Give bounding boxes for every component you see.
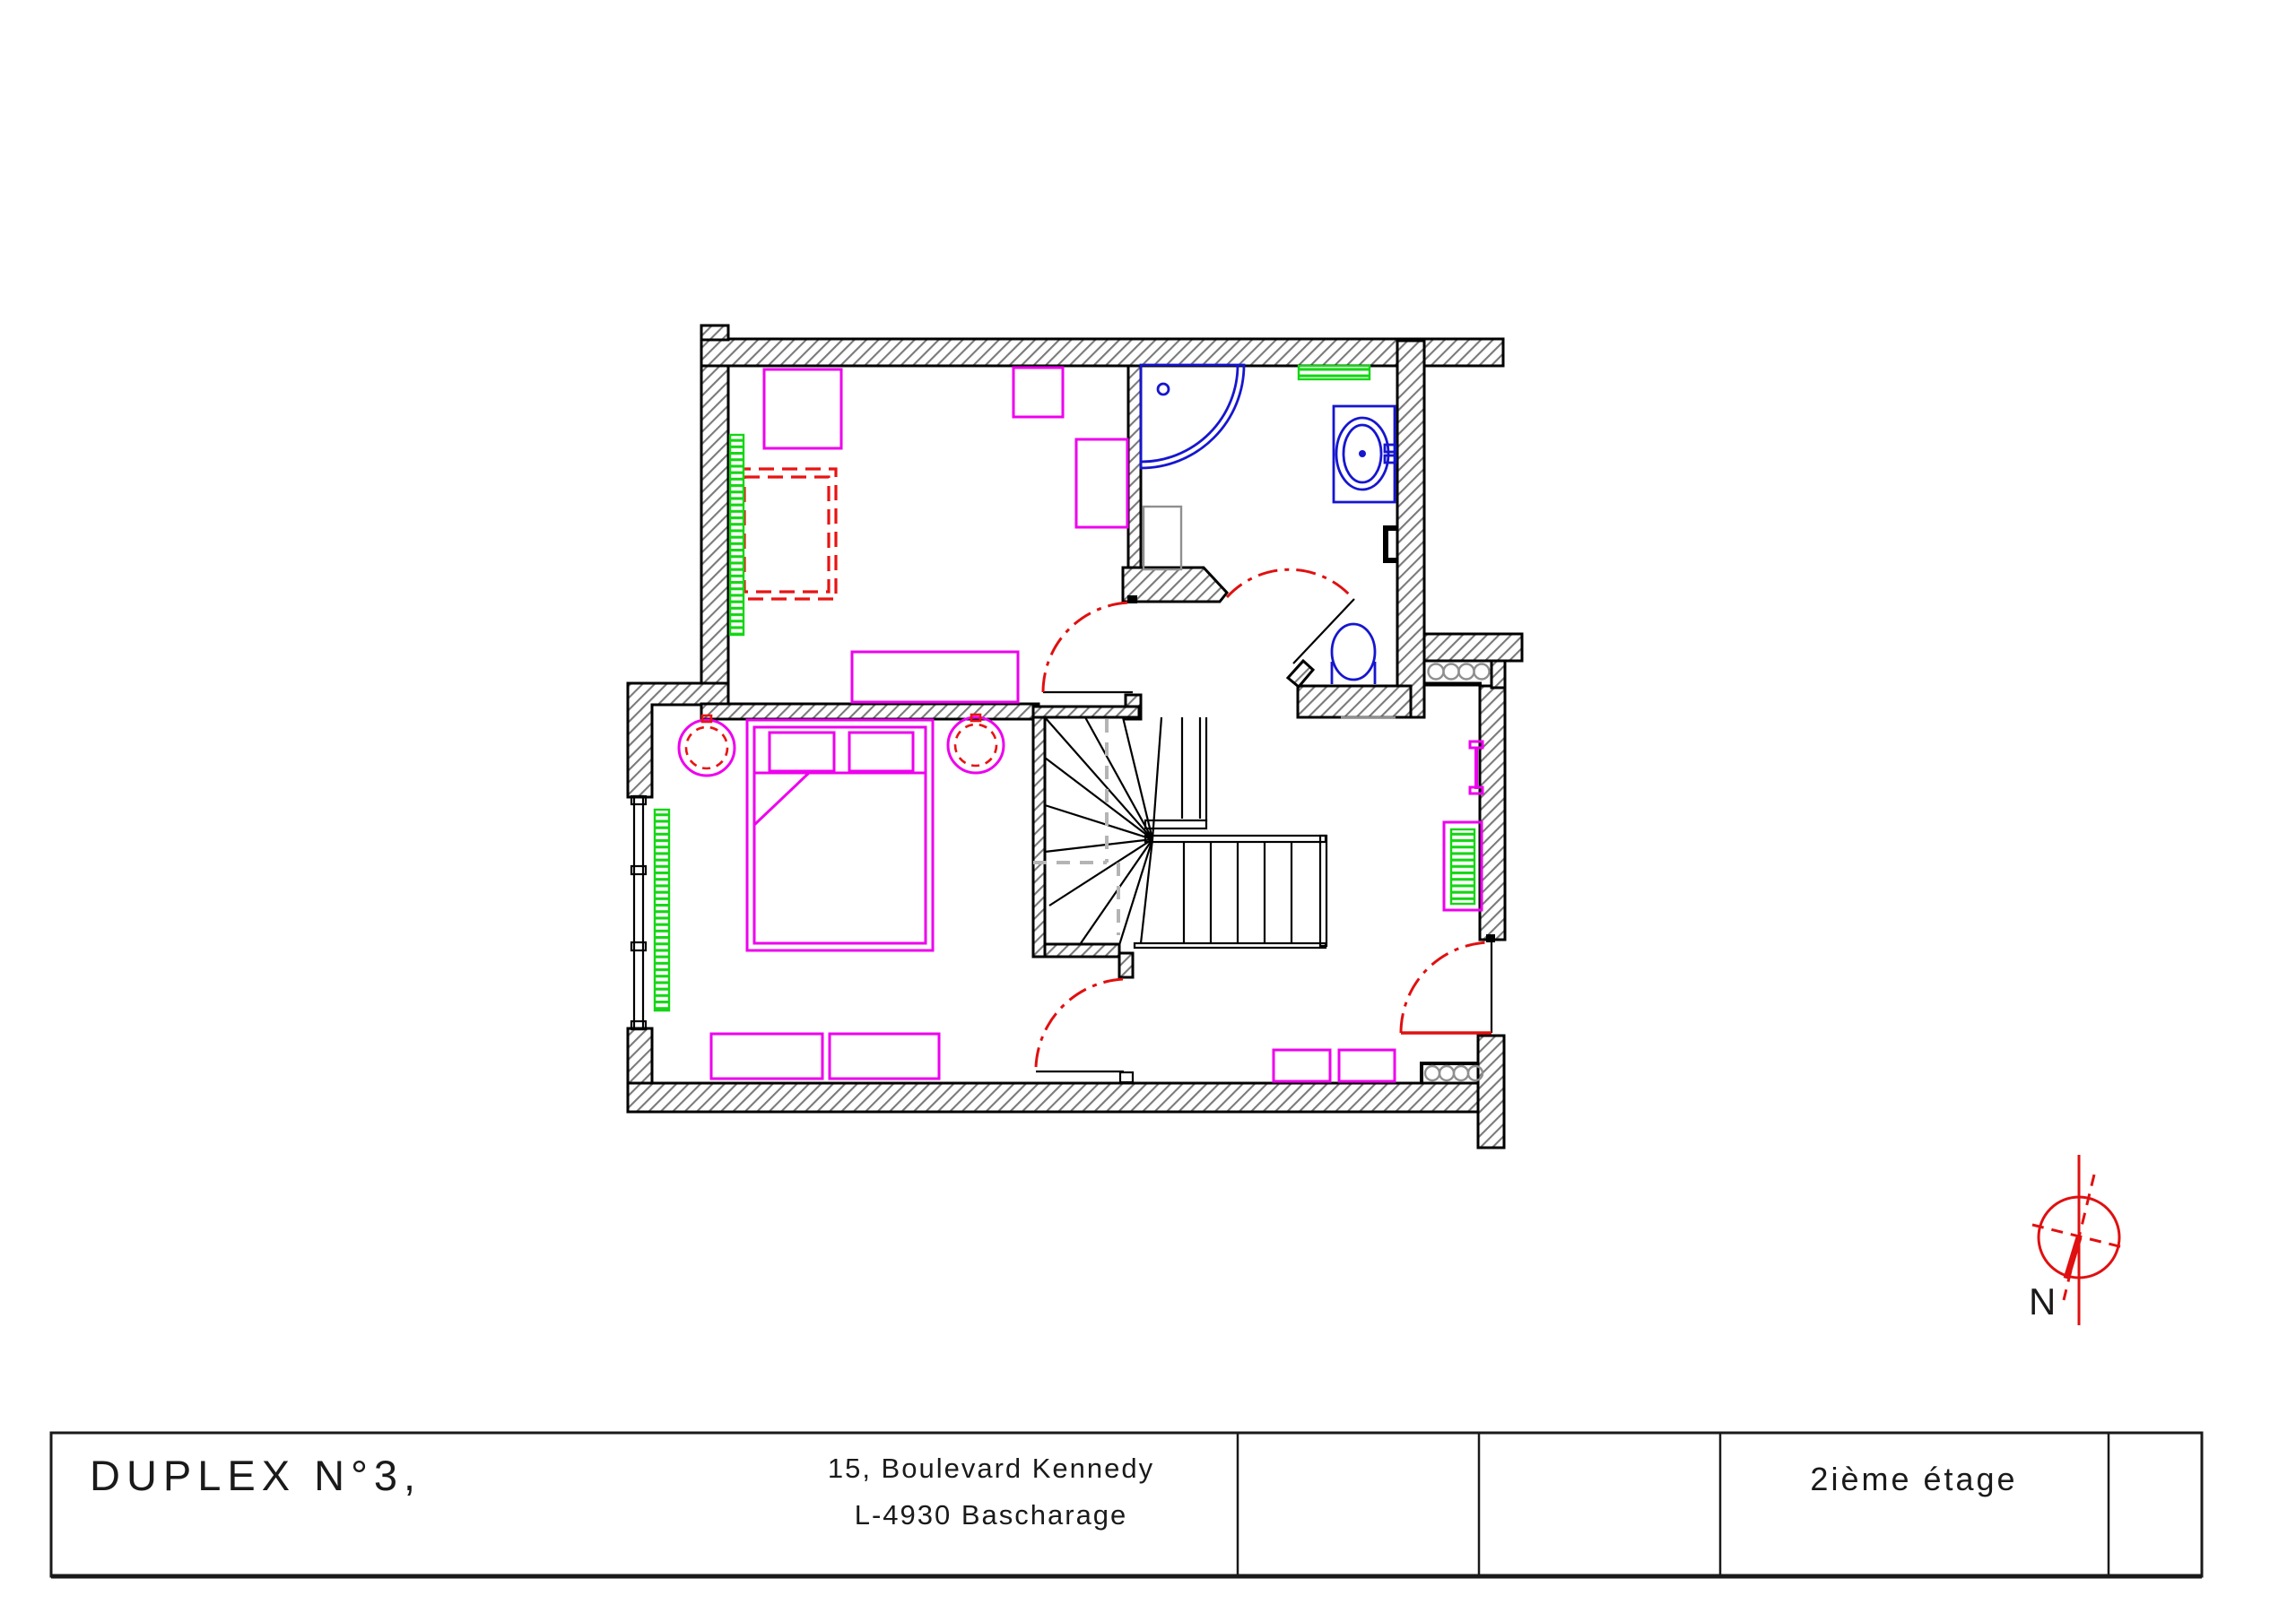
- address-line2: L-4930 Bascharage: [855, 1499, 1128, 1531]
- wall-stair-bottom: [1045, 944, 1119, 957]
- corridor-furniture: [1274, 742, 1483, 1081]
- door-swing-arc: [1401, 942, 1492, 1033]
- shower-drain: [1158, 384, 1169, 395]
- dresser: [830, 1034, 939, 1079]
- sideboard: [852, 652, 1018, 702]
- north-arrow: N: [2029, 1155, 2126, 1325]
- wall-niche-jamb: [1288, 661, 1313, 687]
- door-hinge: [1127, 595, 1137, 603]
- bedside-table-inner: [686, 727, 727, 768]
- staircase: [1033, 717, 1326, 948]
- shower-tray: [1144, 507, 1181, 569]
- door-hinge: [1120, 1072, 1133, 1082]
- wall-bathroom-right: [1397, 341, 1424, 717]
- floor-label: 2ième étage: [1810, 1461, 2017, 1497]
- stair-bottom-edge: [1135, 943, 1326, 948]
- winder-treads: [1045, 717, 1161, 945]
- coat-hooks-upper: [1424, 664, 1490, 685]
- floor-plan-drawing: N DUPLEX N°3, 15, Boulevard Kennedy L-49…: [0, 0, 2296, 1622]
- address-line1: 15, Boulevard Kennedy: [828, 1453, 1154, 1484]
- wardrobe: [764, 369, 841, 448]
- pillow: [770, 733, 834, 771]
- bedroom2-furniture: [655, 715, 1004, 1079]
- bed-dashed-outer: [735, 469, 836, 599]
- side-table: [1013, 368, 1063, 417]
- double-bed: [747, 720, 933, 950]
- hook-icon: [1429, 664, 1444, 680]
- door-stop-bracket: [1386, 528, 1397, 560]
- bedside-table-inner: [955, 724, 996, 766]
- door-swing-arc: [1036, 979, 1124, 1067]
- radiator: [1299, 366, 1370, 379]
- wall-stair-top: [1033, 707, 1139, 717]
- wall-toilet-niche-bottom: [1298, 686, 1411, 717]
- wall-top-left-stub: [701, 325, 728, 340]
- wall-hooks-top: [1424, 634, 1522, 661]
- pillow: [849, 733, 913, 771]
- desk: [1076, 439, 1127, 527]
- stair-newel-right: [1320, 836, 1326, 946]
- radiator: [1451, 829, 1474, 904]
- stair-handrail: [1145, 836, 1326, 842]
- wall-bathroom-bottom-left: [1123, 568, 1227, 602]
- toilet-bowl: [1332, 624, 1375, 680]
- radiator: [655, 810, 669, 1010]
- wall-stair-step-block: [1119, 953, 1133, 977]
- window-left: [631, 796, 646, 1029]
- wall-hook-side: [1492, 661, 1505, 688]
- door-hinge: [1486, 934, 1495, 942]
- shower-inner-line: [1141, 365, 1238, 462]
- coat-hooks-lower: [1422, 1063, 1483, 1083]
- wall-right-lower: [1478, 1036, 1504, 1148]
- radiator: [730, 435, 744, 635]
- hook-icon: [1444, 664, 1459, 680]
- door-bedroom2: [1036, 979, 1133, 1082]
- wall-bottom: [628, 1083, 1478, 1112]
- floor-plan-sheet: N DUPLEX N°3, 15, Boulevard Kennedy L-49…: [0, 0, 2296, 1622]
- shoe-cabinet: [1339, 1050, 1395, 1081]
- hook-icon: [1454, 1066, 1468, 1080]
- shower: [1141, 365, 1244, 468]
- door-swing-arc: [1227, 569, 1352, 598]
- hook-icon: [1439, 1066, 1454, 1080]
- wall-top: [701, 339, 1503, 366]
- upper-flight-treads: [1182, 717, 1206, 821]
- wall-stair-left: [1033, 717, 1045, 957]
- blanket-fold: [754, 773, 809, 825]
- door-bedroom1: [1043, 595, 1137, 692]
- door-swing-arc: [1043, 603, 1133, 692]
- wall-left-step: [628, 683, 728, 797]
- bedroom1-furniture: [730, 368, 1127, 702]
- hook-icon: [1425, 1066, 1439, 1080]
- title-block: DUPLEX N°3, 15, Boulevard Kennedy L-4930…: [51, 1433, 2202, 1576]
- dresser: [711, 1034, 822, 1079]
- wall-bathroom-left: [1128, 366, 1141, 599]
- shoe-cabinet: [1274, 1050, 1330, 1081]
- wall-left-upper: [701, 366, 728, 685]
- window-frame: [634, 796, 643, 1029]
- hook-icon: [1474, 664, 1490, 680]
- wall-corridor-right: [1480, 686, 1505, 940]
- wall-bedroom1-bottom: [701, 704, 1039, 719]
- washbasin-drain: [1359, 450, 1366, 457]
- door-leaf: [1293, 599, 1354, 664]
- north-label: N: [2029, 1280, 2056, 1323]
- hook-icon: [1459, 664, 1474, 680]
- door-bathroom: [1227, 569, 1354, 664]
- lower-flight-treads: [1184, 842, 1291, 943]
- project-title: DUPLEX N°3,: [90, 1452, 422, 1499]
- bathroom-fixtures: [1141, 365, 1396, 684]
- bed-dashed-inner: [744, 477, 829, 592]
- double-bed-inner: [754, 727, 926, 943]
- door-hall-right: [1401, 934, 1495, 1033]
